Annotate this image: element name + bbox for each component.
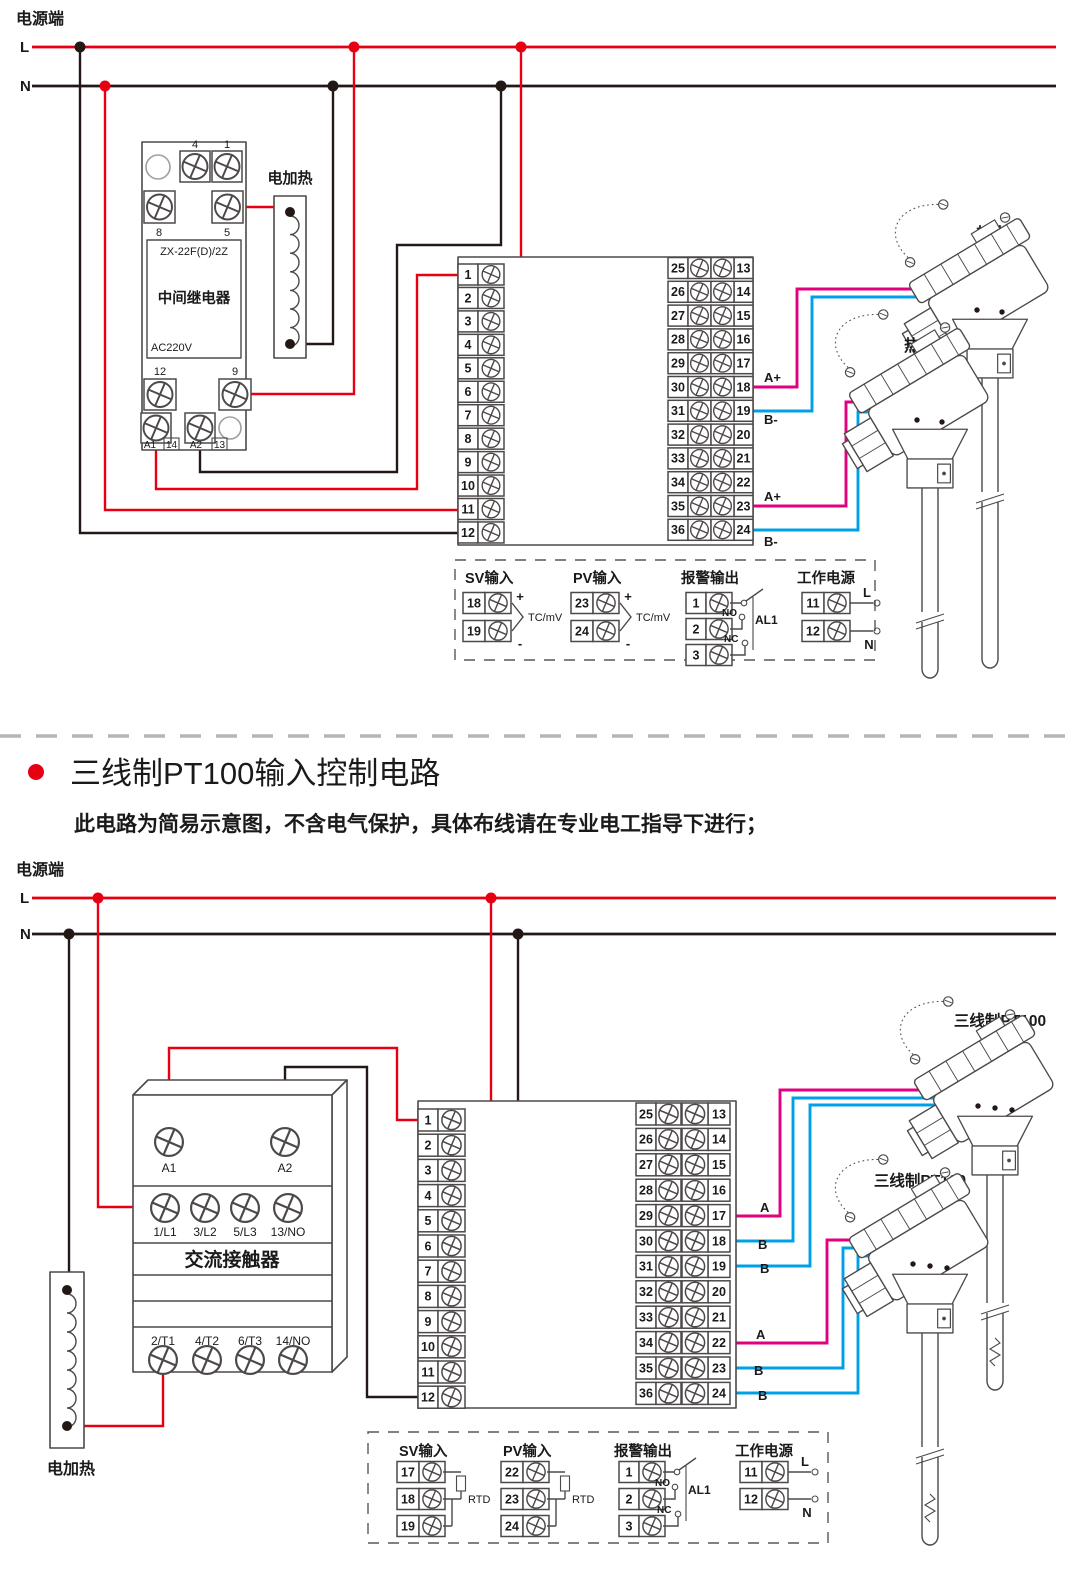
relay-mount-hole — [219, 417, 241, 439]
terminal-number: 8 — [465, 432, 472, 446]
svg-text:12: 12 — [744, 1493, 758, 1507]
legend-alarm-output: 报警输出 1 2 3 NO NC AL1 — [614, 1442, 711, 1538]
terminal-number: 1 — [425, 1113, 432, 1127]
terminal-number: 27 — [639, 1158, 653, 1172]
wire-label-17: A — [760, 1200, 770, 1215]
relay-name: 中间继电器 — [158, 289, 231, 307]
svg-text:23: 23 — [505, 1493, 519, 1507]
terminal-number: 19 — [712, 1260, 726, 1274]
terminal-number: 30 — [671, 380, 685, 394]
wire-label-18: A+ — [764, 370, 781, 385]
terminal-number: 4 — [425, 1189, 432, 1203]
terminal-number: 10 — [421, 1340, 435, 1354]
terminal-legend-top: SV输入 18 19 + - TC/mV PV输入 23 24 + - TC/m… — [455, 560, 880, 667]
terminal-number: 9 — [465, 455, 472, 469]
terminal-number: 19 — [737, 404, 751, 418]
terminal-number: 15 — [712, 1158, 726, 1172]
svg-text:24: 24 — [575, 625, 589, 639]
legend-alarm-output: 报警输出 1 2 3 NO NC AL1 — [681, 569, 778, 667]
legend-working-power: 工作电源 11 12 L N — [735, 1442, 818, 1520]
line-L-label: L — [20, 39, 29, 56]
legend-pv-input: PV输入 22 23 24 RTD — [501, 1442, 594, 1538]
legend-title: 报警输出 — [614, 1442, 672, 1460]
thermocouple-circuit: 电源端 L N 4 1 8 5 ZX-22F(D)/2Z 中间继电器 AC220… — [16, 9, 1059, 678]
svg-text:18: 18 — [401, 1493, 415, 1507]
svg-text:23: 23 — [575, 597, 589, 611]
terminal-number: 28 — [639, 1184, 653, 1198]
relay-terminal-13: 13 — [214, 440, 226, 451]
terminal-number: 25 — [639, 1107, 653, 1121]
terminal-number: 7 — [465, 409, 472, 423]
legend-title: 工作电源 — [735, 1442, 793, 1460]
svg-text:17: 17 — [401, 1466, 415, 1480]
terminal-number: 3 — [465, 315, 472, 329]
ac-contactor: A1 A2 1/L1 3/L2 5/L3 13/NO 交流接触器 2/T1 4/… — [133, 1080, 347, 1378]
svg-text:19: 19 — [401, 1520, 415, 1534]
contactor-3L2: 3/L2 — [193, 1225, 217, 1239]
terminal-number: 11 — [461, 502, 474, 516]
terminal-number: 23 — [712, 1361, 726, 1375]
terminal-number: 36 — [639, 1387, 653, 1401]
terminal-number: 21 — [712, 1311, 726, 1325]
terminal-number: 30 — [639, 1234, 653, 1248]
terminal-number: 6 — [425, 1239, 432, 1253]
terminal-number: 11 — [421, 1365, 434, 1379]
terminal-number: 22 — [712, 1336, 726, 1350]
terminal-number: 20 — [737, 428, 751, 442]
legend-title: SV输入 — [465, 569, 514, 587]
terminal-number: 1 — [465, 268, 472, 282]
legend-sv-input: SV输入 17 18 19 RTD — [397, 1442, 490, 1538]
terminal-number: 13 — [712, 1107, 726, 1121]
svg-text:3: 3 — [626, 1520, 633, 1534]
sensor-type: TC/mV — [636, 612, 671, 624]
terminal-number: 36 — [671, 523, 685, 537]
relay-terminal-A2: A2 — [190, 440, 203, 451]
legend-sv-input: SV输入 18 19 + - TC/mV — [463, 569, 563, 651]
relay-model: ZX-22F(D)/2Z — [160, 246, 228, 258]
terminal-number: 16 — [737, 333, 751, 347]
legend-title: SV输入 — [399, 1442, 448, 1460]
contactor-5L3: 5/L3 — [233, 1225, 257, 1239]
terminal-legend-bottom: SV输入 17 18 19 RTD PV输入 22 23 24 — [368, 1432, 828, 1543]
terminal-number: 13 — [737, 261, 751, 275]
terminal-number: 24 — [712, 1387, 726, 1401]
terminal-number: 33 — [671, 452, 685, 466]
wire-label-23: B — [754, 1363, 763, 1378]
sensor-type: TC/mV — [528, 612, 563, 624]
legend-title: 报警输出 — [681, 569, 739, 587]
svg-text:L: L — [801, 1454, 809, 1469]
relay-terminal-4: 4 — [192, 139, 198, 151]
terminal-number: 26 — [639, 1133, 653, 1147]
svg-text:+: + — [624, 589, 632, 604]
terminal-number: 18 — [712, 1234, 726, 1248]
wire-label-22: A — [756, 1327, 766, 1342]
relay-terminal-12: 12 — [154, 366, 166, 378]
svg-text:11: 11 — [806, 597, 819, 611]
sensor-type: RTD — [468, 1494, 490, 1506]
alarm-relay-name: AL1 — [755, 613, 778, 627]
diagram-canvas: 电源端 L N 4 1 8 5 ZX-22F(D)/2Z 中间继电器 AC220… — [0, 0, 1080, 1587]
terminal-number: 29 — [671, 357, 685, 371]
svg-text:-: - — [518, 636, 522, 651]
terminal-number: 14 — [712, 1133, 726, 1147]
power-terminal-label: 电源端 — [16, 9, 64, 28]
relay-terminal-5: 5 — [224, 227, 230, 239]
svg-text:-: - — [626, 636, 630, 651]
terminal-number: 16 — [712, 1184, 726, 1198]
terminal-number: 33 — [639, 1311, 653, 1325]
terminal-number: 5 — [425, 1214, 432, 1228]
terminal-number: 2 — [465, 291, 472, 305]
terminal-number: 31 — [671, 404, 685, 418]
terminal-number: 34 — [639, 1336, 653, 1350]
svg-text:3: 3 — [693, 649, 700, 663]
section-title: 三线制PT100输入控制电路 — [70, 756, 440, 791]
heater-label: 电加热 — [47, 1459, 95, 1478]
svg-text:2: 2 — [626, 1493, 633, 1507]
bullet-icon — [28, 764, 44, 780]
terminal-number: 17 — [737, 357, 751, 371]
svg-text:22: 22 — [505, 1466, 519, 1480]
terminal-number: 5 — [465, 362, 472, 376]
electric-heater: 电加热 — [47, 1272, 95, 1478]
terminal-number: 17 — [712, 1209, 726, 1223]
no-contact-label: NO — [655, 1478, 670, 1489]
intermediate-relay: 4 1 8 5 ZX-22F(D)/2Z 中间继电器 AC220V 12 9 A… — [140, 139, 252, 451]
terminal-number: 24 — [737, 523, 751, 537]
terminal-number: 29 — [639, 1209, 653, 1223]
terminal-number: 9 — [425, 1315, 432, 1329]
svg-text:19: 19 — [467, 625, 481, 639]
wire-label-19: B- — [764, 412, 778, 427]
legend-title: PV输入 — [503, 1442, 552, 1460]
terminal-number: 3 — [425, 1164, 432, 1178]
line-N-label: N — [20, 926, 31, 943]
relay-voltage: AC220V — [151, 342, 193, 354]
nc-contact-label: NC — [724, 634, 738, 645]
relay-terminal-A1: A1 — [144, 440, 157, 451]
terminal-number: 32 — [639, 1285, 653, 1299]
wire-label-24: B — [758, 1388, 767, 1403]
legend-title: PV输入 — [573, 569, 622, 587]
pt100-circuit: 电源端 L N A1 A2 1/L1 3/L2 5/L3 13/NO 交流接触器 — [16, 860, 1064, 1545]
svg-text:24: 24 — [505, 1520, 519, 1534]
terminal-number: 7 — [425, 1265, 432, 1279]
legend-pv-input: PV输入 23 24 + - TC/mV — [571, 569, 671, 651]
terminal-number: 12 — [461, 526, 475, 540]
terminal-number: 31 — [639, 1260, 653, 1274]
terminal-number: 35 — [671, 499, 685, 513]
svg-text:18: 18 — [467, 597, 481, 611]
svg-text:12: 12 — [806, 625, 820, 639]
svg-text:11: 11 — [744, 1466, 757, 1480]
no-contact-label: NO — [722, 608, 737, 619]
terminal-number: 25 — [671, 261, 685, 275]
terminal-number: 23 — [737, 499, 751, 513]
terminal-number: 28 — [671, 333, 685, 347]
electric-heater: 电加热 — [267, 169, 312, 358]
controller-terminal-block: 123456789101112 252627282930313233343536… — [418, 1101, 736, 1410]
legend-working-power: 工作电源 11 12 L N — [797, 569, 880, 652]
svg-text:L: L — [863, 585, 871, 600]
wire-label-18: B — [758, 1237, 767, 1252]
wiring-diagram-page: 电源端 L N 4 1 8 5 ZX-22F(D)/2Z 中间继电器 AC220… — [0, 0, 1080, 1587]
line-L-label: L — [20, 890, 29, 907]
line-N-label: N — [20, 78, 31, 95]
svg-text:1: 1 — [693, 597, 700, 611]
wire-label-24: B- — [764, 534, 778, 549]
relay-terminal-1: 1 — [224, 139, 230, 151]
contactor-13NO: 13/NO — [271, 1225, 306, 1239]
legend-title: 工作电源 — [797, 569, 855, 587]
terminal-number: 6 — [465, 385, 472, 399]
terminal-number: 32 — [671, 428, 685, 442]
heater-label: 电加热 — [267, 169, 312, 187]
svg-text:N: N — [864, 637, 873, 652]
controller-terminal-block: 123456789101112 252627282930313233343536… — [458, 256, 753, 545]
contactor-1L1: 1/L1 — [153, 1225, 177, 1239]
terminal-number: 21 — [737, 452, 751, 466]
svg-text:N: N — [802, 1505, 811, 1520]
terminal-number: 4 — [465, 338, 472, 352]
terminal-number: 10 — [461, 479, 475, 493]
terminal-number: 15 — [737, 309, 751, 323]
sensor-type: RTD — [572, 1494, 594, 1506]
terminal-number: 12 — [421, 1391, 435, 1405]
relay-terminal-14: 14 — [166, 440, 178, 451]
terminal-number: 2 — [425, 1139, 432, 1153]
terminal-number: 34 — [671, 476, 685, 490]
alarm-relay-name: AL1 — [688, 1483, 711, 1497]
terminal-number: 18 — [737, 380, 751, 394]
relay-terminal-8: 8 — [156, 227, 162, 239]
power-terminal-label: 电源端 — [16, 860, 64, 879]
contactor-name: 交流接触器 — [184, 1248, 280, 1271]
terminal-number: 20 — [712, 1285, 726, 1299]
svg-text:+: + — [516, 589, 524, 604]
terminal-number: 27 — [671, 309, 685, 323]
contactor-A1: A1 — [162, 1161, 177, 1175]
terminal-number: 35 — [639, 1361, 653, 1375]
contactor-A2: A2 — [278, 1161, 293, 1175]
svg-text:1: 1 — [626, 1466, 633, 1480]
terminal-number: 14 — [737, 285, 751, 299]
terminal-number: 8 — [425, 1290, 432, 1304]
wire-label-23: A+ — [764, 489, 781, 504]
relay-terminal-9: 9 — [232, 366, 238, 378]
svg-text:2: 2 — [693, 623, 700, 637]
section-subtitle: 此电路为简易示意图，不含电气保护，具体布线请在专业电工指导下进行； — [74, 812, 767, 836]
nc-contact-label: NC — [657, 1505, 671, 1516]
relay-mount-hole — [146, 155, 170, 179]
terminal-number: 22 — [737, 476, 751, 490]
terminal-number: 26 — [671, 285, 685, 299]
wire-label-19: B — [760, 1261, 769, 1276]
